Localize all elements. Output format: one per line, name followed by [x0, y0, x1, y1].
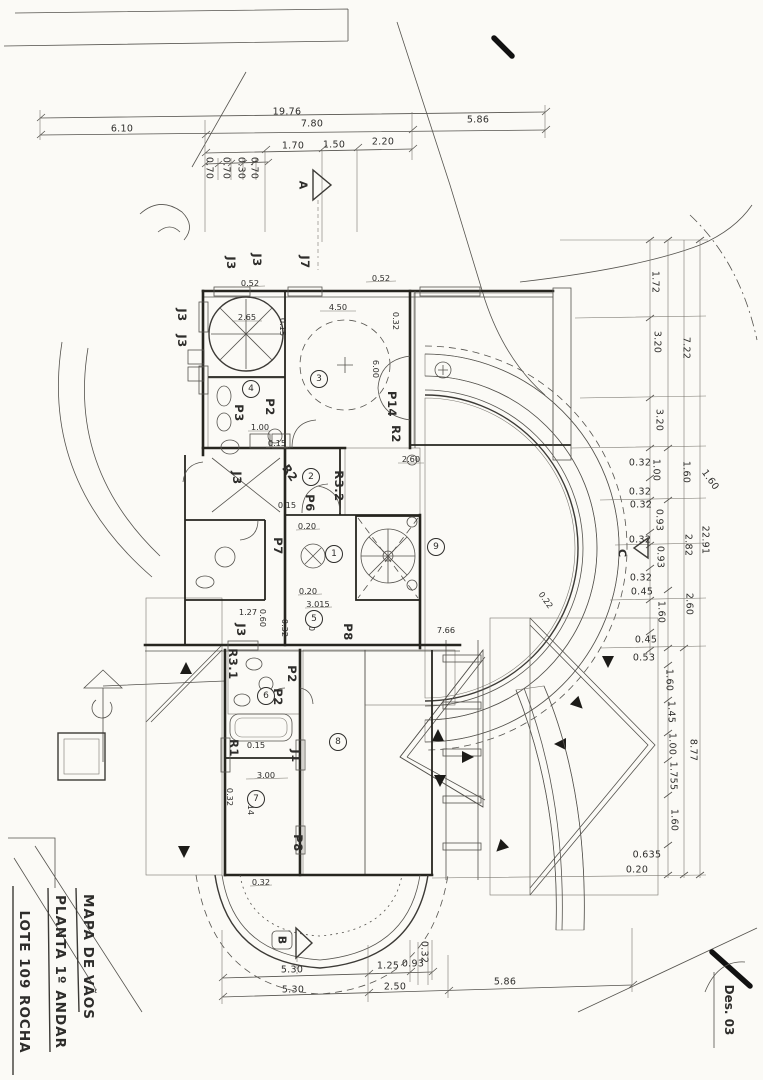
opening-label: P8	[291, 834, 305, 851]
drawing-number-mark	[712, 952, 750, 986]
dimension-label-inner: 0.60	[258, 609, 268, 627]
dimension-label-right: 22.91	[700, 526, 711, 555]
dimension-label-inner: 0.20	[299, 586, 317, 596]
dimension-label-bottom: 5.30	[282, 985, 304, 996]
dimension-label-top: 7.80	[301, 119, 323, 130]
dimension-label-inner: 7.66	[437, 625, 455, 635]
section-marker-a: A	[297, 181, 310, 190]
opening-label: R2	[279, 462, 301, 485]
title-block-text: MAPA DE VÃOSPLANTA 1º ANDARLOTE 109 ROCH…	[16, 894, 97, 1054]
title-line-1: MAPA DE VÃOS	[80, 894, 97, 1020]
semicircular-terrace-tiles	[425, 398, 575, 698]
section-marker-letters: ABC	[276, 181, 629, 944]
room-number: 1	[331, 549, 337, 559]
dimension-label-right: 1.755	[668, 762, 679, 791]
blueprint-sheet: 19.766.107.805.861.701.502.200.700.700.3…	[0, 0, 763, 1080]
dimension-label-inner: 0.20	[298, 521, 316, 531]
top-dimension-labels: 19.766.107.805.861.701.502.200.700.700.3…	[111, 107, 489, 180]
title-block	[13, 886, 750, 1075]
dimension-label-right: 0.93	[655, 546, 666, 568]
terrace-parapet-band	[425, 354, 619, 742]
dimension-label-inner: 4.50	[329, 302, 347, 312]
dimension-label-right: 1.60	[669, 809, 680, 831]
dimension-label-right: 3.20	[652, 331, 663, 353]
dimension-label-right: 0.635	[633, 850, 662, 861]
dimension-label-bottom: 5.30	[281, 965, 303, 976]
opening-label: P3	[232, 404, 246, 421]
dimension-label-right: 1.60	[664, 669, 675, 691]
dimension-label-top: 6.10	[111, 124, 133, 135]
dimension-label-right: 0.32	[629, 535, 651, 546]
dimension-label-inner: 0.15	[278, 318, 288, 336]
dimension-label-top: 0.30	[236, 157, 247, 179]
dimension-label-top: 0.70	[249, 157, 260, 179]
opening-label: P14	[385, 391, 399, 417]
dimension-label-inner: 0.32	[252, 877, 270, 887]
dimension-label-right: 1.60	[656, 601, 667, 623]
dimension-label-inner: 0.32	[280, 619, 290, 637]
opening-label: J1	[289, 748, 303, 762]
dimension-label-right: 0.32	[630, 573, 652, 584]
dimension-label-inner: 3.015	[306, 599, 329, 609]
opening-label: R2	[389, 425, 403, 443]
terrace-hatching	[303, 293, 627, 875]
section-arrow-b	[296, 928, 312, 958]
opening-label: R3.1	[226, 648, 240, 679]
drawing-number-text: Des. 03	[722, 985, 736, 1036]
dimension-label-top: 1.70	[282, 141, 304, 152]
dimension-label-right: 0.20	[626, 865, 648, 876]
dimension-label-top: 0.70	[221, 157, 232, 179]
dimension-label-right: 1.45	[666, 701, 677, 723]
dimension-label-right: 1.60	[681, 461, 692, 483]
room-number: 9	[433, 542, 439, 552]
rear-terrace-tiles	[303, 650, 365, 875]
walls	[145, 287, 571, 994]
dimension-label-top: 1.50	[323, 140, 345, 151]
opening-label: J3	[175, 307, 189, 321]
balcony-parapet	[553, 288, 571, 460]
drawing-number: Des. 03	[722, 985, 736, 1036]
dimension-label-right: 1.00	[651, 459, 662, 481]
dimension-label-inner: 6.00	[371, 360, 381, 378]
room-number: 6	[263, 691, 269, 701]
dimension-label-right: 2.82	[683, 534, 694, 556]
dimension-label-inner: 0.15	[268, 438, 286, 448]
dimension-label-bottom: 1.25	[377, 961, 399, 972]
dimension-label-right: 7.22	[681, 337, 692, 359]
title-line-3: LOTE 109 ROCHA	[16, 910, 32, 1053]
dimension-label-bottom: 5.86	[494, 977, 516, 988]
dimension-label-right: 2.60	[684, 593, 695, 615]
dimension-label-inner: 0.15	[247, 740, 265, 750]
dimension-label-right: 8.77	[688, 739, 699, 761]
dimension-label-top: 19.76	[273, 107, 302, 118]
pen-mark	[494, 38, 512, 56]
right-dimension-labels: 1.723.203.200.321.000.320.320.930.320.93…	[626, 271, 721, 876]
dimension-label-right: 0.32	[629, 458, 651, 469]
dimension-label-inner: 1.00	[251, 422, 269, 432]
site-boundary-lines	[4, 9, 757, 1012]
section-marker-b: B	[276, 936, 289, 944]
dimension-label-right: 1.00	[667, 733, 678, 755]
roof-planes	[58, 598, 658, 930]
roof-slope-arrow	[180, 662, 192, 674]
dimension-label-right: 1.60	[699, 468, 721, 493]
dimension-label-right: 0.45	[631, 587, 653, 598]
opening-label: P7	[271, 537, 285, 554]
floor-plan-drawing: 19.766.107.805.861.701.502.200.700.700.3…	[0, 0, 763, 1080]
opening-label: P2	[263, 398, 277, 415]
left-roof	[146, 645, 222, 875]
room-number: 3	[316, 374, 322, 384]
dimension-label-top: 0.70	[204, 157, 215, 179]
dimension-label-inner: 0.32	[225, 788, 235, 806]
section-marker-c: C	[616, 549, 629, 557]
dimension-label-right: 1.72	[650, 271, 661, 293]
roof-skylight	[58, 733, 105, 780]
opening-label: J3	[234, 622, 248, 636]
dimension-label-right: 3.20	[654, 409, 665, 431]
opening-label: R1	[227, 739, 241, 757]
room-number: 2	[308, 472, 314, 482]
dimension-label-inner: 2.60	[402, 454, 420, 464]
dimension-label-right: 0.53	[633, 653, 655, 664]
opening-label: P6	[303, 494, 317, 511]
dimension-label-right: 0.93	[654, 509, 665, 531]
title-line-2: PLANTA 1º ANDAR	[52, 895, 68, 1049]
dimension-label-inner: 0.22	[537, 590, 556, 611]
dimension-label-bottom: 2.50	[384, 982, 406, 993]
opening-label: P2	[285, 665, 299, 682]
opening-label: P8	[341, 623, 355, 640]
opening-labels: J3J3J7J3J3J3J3J1P2P3P2P2P6P7P8P8P14R2R2R…	[175, 252, 403, 851]
opening-label: J3	[250, 252, 264, 266]
dimension-label-inner: 0.52	[241, 278, 259, 288]
dimension-label-right: 0.32	[630, 500, 652, 511]
dimension-label-top: 2.20	[372, 137, 394, 148]
dimension-label-inner: 1.27	[239, 607, 257, 617]
dimension-label-inner: 0.32	[391, 312, 401, 330]
room-number: 5	[311, 614, 317, 624]
dimension-label-right: 0.45	[635, 635, 657, 646]
dimension-lines	[37, 105, 708, 1004]
dimension-label-inner: 2.65	[238, 312, 256, 322]
room-number: 4	[248, 384, 254, 394]
opening-label: R3.2	[332, 470, 346, 501]
opening-label: J3	[175, 333, 189, 347]
dimension-label-inner: 3.00	[257, 770, 275, 780]
room-number: 7	[253, 794, 259, 804]
room-number: 8	[335, 737, 341, 747]
dimension-label-inner: 0.52	[372, 273, 390, 283]
opening-label: J7	[298, 254, 312, 268]
dimension-label-bottom: 0.32	[419, 941, 430, 963]
opening-label: J3	[230, 470, 244, 484]
dimension-label-inner: 0.15	[278, 500, 296, 510]
opening-label: J3	[224, 255, 238, 269]
dimension-label-top: 5.86	[467, 115, 489, 126]
dimension-label-right: 0.32	[629, 487, 651, 498]
